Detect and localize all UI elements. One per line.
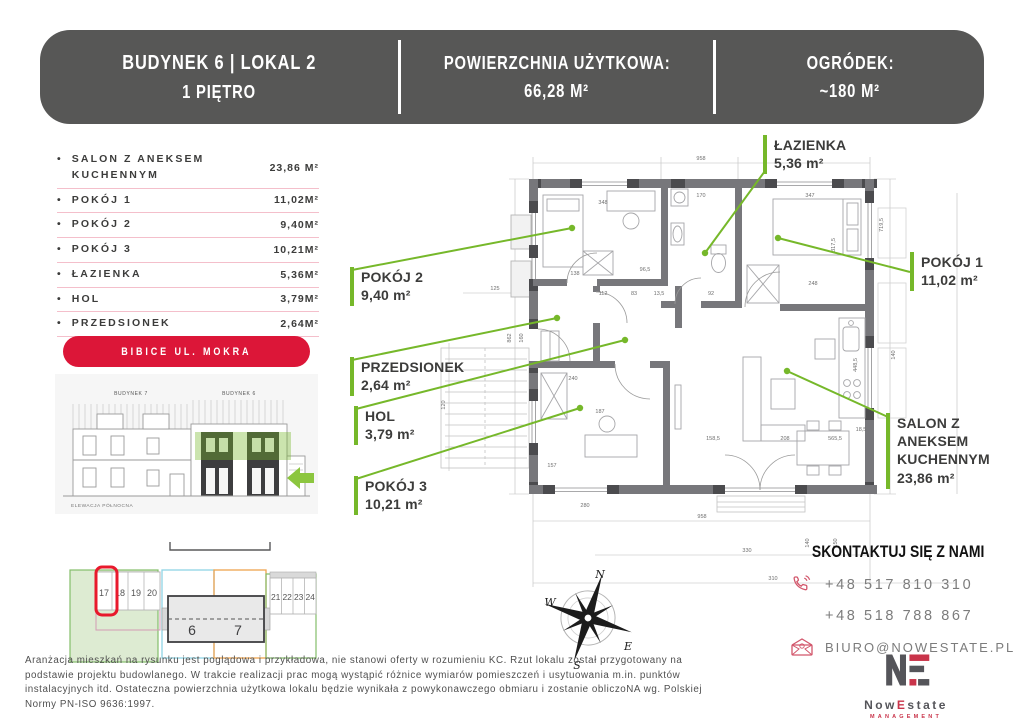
svg-text:13,5: 13,5 <box>654 291 665 297</box>
room-name: POKÓJ 3 <box>365 477 427 495</box>
phone-number-1[interactable]: +48 517 810 310 <box>825 577 973 593</box>
ne-monogram-icon <box>881 649 931 691</box>
spot-number: 22 <box>282 592 292 602</box>
svg-text:187: 187 <box>595 409 604 415</box>
terrace-steps <box>717 496 805 512</box>
compass-n: N <box>594 568 605 581</box>
room-value: 5,36M² <box>280 269 319 281</box>
room-name: HOL <box>72 292 100 308</box>
contact-title: SKONTAKTUJ SIĘ Z NAMI <box>812 542 984 562</box>
svg-text:157: 157 <box>547 463 556 469</box>
spot-number: 20 <box>147 588 157 598</box>
site-plan-panel: 17 18 19 20 6 7 21 22 23 24 <box>66 538 320 668</box>
room-area: 11,02 m² <box>921 271 983 289</box>
spot-number: 24 <box>305 592 315 602</box>
room-area: 23,86 m² <box>897 469 1019 487</box>
area-label: POWIERZCHNIA UŻYTKOWA: <box>444 53 671 74</box>
outer-walls <box>529 179 877 494</box>
room-list-row: •POKÓJ 2 9,40M² <box>57 213 319 238</box>
road-bracket <box>170 542 270 550</box>
room-area: 9,40 m² <box>361 286 423 304</box>
area-value: 66,28 M² <box>525 81 590 102</box>
svg-text:862: 862 <box>507 333 513 342</box>
svg-text:310: 310 <box>768 576 777 582</box>
room-area: 2,64 m² <box>361 376 464 394</box>
compass-e: E <box>623 640 632 653</box>
room-name: POKÓJ 2 <box>72 217 132 233</box>
svg-text:330: 330 <box>742 548 751 554</box>
header-section-garden: OGRÓDEK: ~180 M² <box>716 53 984 102</box>
svg-text:565,5: 565,5 <box>828 436 842 442</box>
room-name: ŁAZIENKA <box>774 136 846 154</box>
svg-text:158,5: 158,5 <box>706 436 720 442</box>
room-name: SALON Z ANEKSEM KUCHENNYM <box>897 414 1019 469</box>
header-section-unit: BUDYNEK 6 | LOKAL 2 1 PIĘTRO <box>40 52 398 103</box>
header-bar: BUDYNEK 6 | LOKAL 2 1 PIĘTRO POWIERZCHNI… <box>40 30 984 124</box>
contact-phone-row: +48 518 788 867 <box>778 608 1018 624</box>
parking-right: 21 22 23 24 <box>270 572 316 614</box>
svg-text:112: 112 <box>599 291 608 297</box>
envelope-icon <box>790 635 814 659</box>
parking-left: 17 18 19 20 <box>96 572 160 610</box>
svg-text:958: 958 <box>697 514 706 520</box>
svg-text:18,5: 18,5 <box>856 427 867 433</box>
room-value: 10,21M² <box>273 244 319 256</box>
building-number-left: 6 <box>188 622 196 638</box>
room-name: POKÓJ 2 <box>361 268 423 286</box>
disclaimer-text: Aranżacja mieszkań na rysunku jest poglą… <box>25 654 727 713</box>
svg-text:317,5: 317,5 <box>831 238 837 252</box>
plan-label-przedsionek: PRZEDSIONEK 2,64 m² <box>350 357 464 396</box>
contact-block: SKONTAKTUJ SIĘ Z NAMI +48 517 810 310 +4… <box>778 542 1018 659</box>
room-list-row: •PRZEDSIONEK 2,64M² <box>57 312 319 337</box>
room-name: ŁAZIENKA <box>72 267 142 283</box>
room-list-row: •POKÓJ 3 10,21M² <box>57 238 319 263</box>
header-section-area: POWIERZCHNIA UŻYTKOWA: 66,28 M² <box>401 53 713 102</box>
room-list-row: •SALON Z ANEKSEM KUCHENNYM 23,86 M² <box>57 148 319 189</box>
plan-label-pokoj2: POKÓJ 2 9,40 m² <box>350 267 423 306</box>
location-label: BIBICE UL. MOKRA <box>121 346 251 358</box>
room-name: HOL <box>365 407 415 425</box>
svg-text:83: 83 <box>631 291 637 297</box>
svg-text:120: 120 <box>441 400 447 409</box>
neighbour-unit-hint <box>878 208 906 418</box>
unit-floor: 1 PIĘTRO <box>182 82 256 103</box>
building-block: 6 7 <box>162 596 270 642</box>
bullet: • <box>57 267 63 283</box>
spot-number: 23 <box>294 592 304 602</box>
svg-text:208: 208 <box>780 436 789 442</box>
elevation-panel: BUDYNEK 7 BUDYNEK 6 ELEWACJA PÓŁNOCNA <box>55 374 318 514</box>
bullet: • <box>57 152 63 168</box>
bullet: • <box>57 217 63 233</box>
room-area: 3,79 m² <box>365 425 415 443</box>
room-value: 9,40M² <box>280 219 319 231</box>
room-name: POKÓJ 1 <box>921 253 983 271</box>
bullet: • <box>57 292 63 308</box>
furniture <box>541 189 865 475</box>
room-name: PRZEDSIONEK <box>361 358 464 376</box>
elevation-drawing: BUDYNEK 7 BUDYNEK 6 ELEWACJA PÓŁNOCNA <box>55 374 318 514</box>
room-value: 2,64M² <box>280 318 319 330</box>
svg-text:248: 248 <box>808 281 817 287</box>
svg-text:280: 280 <box>580 503 589 509</box>
plan-label-pokoj1: POKÓJ 1 11,02 m² <box>910 252 983 291</box>
plan-label-salon: SALON Z ANEKSEM KUCHENNYM 23,86 m² <box>886 413 1019 489</box>
unit-title: BUDYNEK 6 | LOKAL 2 <box>122 52 316 75</box>
compass-w: W <box>544 596 557 609</box>
bullet: • <box>57 242 63 258</box>
logo-subtitle: MANAGEMENT <box>841 715 971 721</box>
elevation-left-label: BUDYNEK 7 <box>114 391 148 397</box>
bullet: • <box>57 316 63 332</box>
logo-wordmark: NowEstate <box>841 699 971 711</box>
site-plan-drawing: 17 18 19 20 6 7 21 22 23 24 <box>66 538 320 668</box>
balconies <box>511 215 531 297</box>
svg-text:347: 347 <box>805 193 814 199</box>
svg-text:138: 138 <box>570 271 579 277</box>
svg-text:958: 958 <box>696 156 705 162</box>
room-list-row: •HOL 3,79M² <box>57 288 319 313</box>
highlight-floor-overlay <box>195 432 291 460</box>
plan-label-lazienka: ŁAZIENKA 5,36 m² <box>763 135 846 174</box>
plan-label-pokoj3: POKÓJ 3 10,21 m² <box>354 476 427 515</box>
phone-icon <box>790 573 814 597</box>
svg-text:125: 125 <box>490 286 499 292</box>
interior-walls <box>529 179 874 485</box>
room-name: PRZEDSIONEK <box>72 316 171 332</box>
svg-text:719,5: 719,5 <box>879 218 885 232</box>
svg-text:92: 92 <box>708 291 714 297</box>
room-list-row: •ŁAZIENKA 5,36M² <box>57 263 319 288</box>
svg-text:348: 348 <box>598 200 607 206</box>
bullet: • <box>57 193 63 209</box>
room-value: 11,02M² <box>274 194 319 206</box>
room-area: 5,36 m² <box>774 154 846 172</box>
spot-number: 19 <box>131 588 141 598</box>
garden-label: OGRÓDEK: <box>806 53 894 74</box>
room-name: SALON Z ANEKSEM KUCHENNYM <box>72 152 240 184</box>
svg-text:96,5: 96,5 <box>640 267 651 273</box>
elevation-caption: ELEWACJA PÓŁNOCNA <box>71 502 133 509</box>
svg-text:170: 170 <box>696 193 705 199</box>
plan-label-hol: HOL 3,79 m² <box>354 406 415 445</box>
phone-number-2[interactable]: +48 518 788 867 <box>825 608 973 624</box>
building-number-right: 7 <box>234 622 242 638</box>
location-button[interactable]: BIBICE UL. MOKRA <box>63 336 310 367</box>
garden-value: ~180 M² <box>820 81 880 102</box>
spot-number: 17 <box>99 588 109 598</box>
room-leader-lines <box>352 171 910 479</box>
svg-text:140: 140 <box>891 350 897 359</box>
room-value: 3,79M² <box>280 293 319 305</box>
elevation-right-label: BUDYNEK 6 <box>222 391 256 397</box>
room-name: POKÓJ 1 <box>72 193 132 209</box>
room-list-row: •POKÓJ 1 11,02M² <box>57 189 319 214</box>
svg-text:448,5: 448,5 <box>853 358 859 372</box>
room-name: POKÓJ 3 <box>72 242 132 258</box>
nowestate-logo: NowEstate MANAGEMENT <box>841 649 971 721</box>
room-area: 10,21 m² <box>365 495 427 513</box>
svg-text:160: 160 <box>519 333 525 342</box>
room-list: •SALON Z ANEKSEM KUCHENNYM 23,86 M² •POK… <box>57 148 319 337</box>
room-value: 23,86 M² <box>270 162 319 174</box>
svg-text:240: 240 <box>568 376 577 382</box>
spot-number: 21 <box>271 592 281 602</box>
contact-phone-row: +48 517 810 310 <box>778 573 1018 597</box>
